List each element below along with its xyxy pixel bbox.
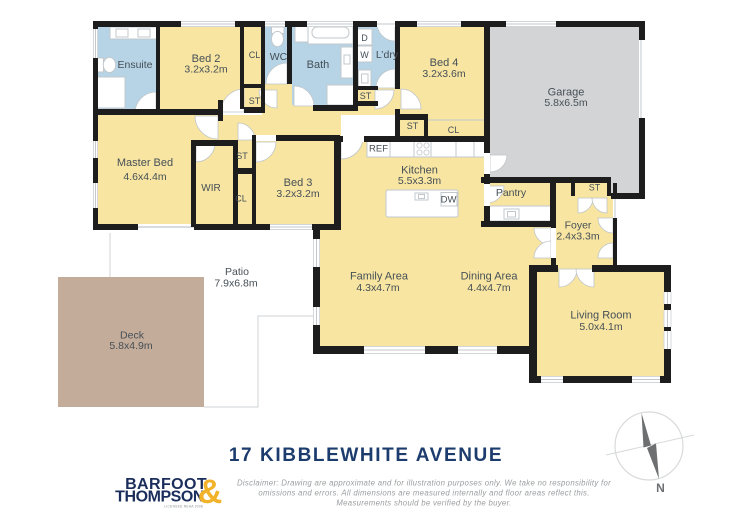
svg-text:DW: DW xyxy=(441,195,457,206)
svg-text:omissions and errors. All dime: omissions and errors. All dimensions are… xyxy=(258,489,589,498)
svg-text:Dining Area: Dining Area xyxy=(461,271,519,283)
svg-text:WC: WC xyxy=(270,51,288,63)
svg-text:REF: REF xyxy=(369,144,388,155)
svg-text:D: D xyxy=(361,33,368,43)
svg-text:ST: ST xyxy=(236,151,248,161)
svg-text:L’dry: L’dry xyxy=(376,49,399,61)
svg-text:Measurements should be verifie: Measurements should be verified by the b… xyxy=(336,499,511,508)
svg-text:W: W xyxy=(360,50,369,60)
svg-text:2.4x3.3m: 2.4x3.3m xyxy=(556,231,599,243)
svg-text:5.8x6.5m: 5.8x6.5m xyxy=(544,97,587,109)
svg-text:ST: ST xyxy=(249,96,261,106)
svg-text:7.9x6.8m: 7.9x6.8m xyxy=(214,278,257,290)
svg-text:3.2x3.6m: 3.2x3.6m xyxy=(422,68,465,80)
svg-text:5.8x4.9m: 5.8x4.9m xyxy=(109,340,152,352)
svg-text:CL: CL xyxy=(249,50,261,60)
svg-text:3.2x3.2m: 3.2x3.2m xyxy=(184,64,227,76)
svg-text:4.4x4.7m: 4.4x4.7m xyxy=(467,282,510,294)
svg-text:CL: CL xyxy=(448,125,460,135)
svg-text:ST: ST xyxy=(360,91,372,101)
svg-text:Living Room: Living Room xyxy=(570,310,631,322)
svg-text:N: N xyxy=(656,481,665,495)
svg-text:4.6x4.4m: 4.6x4.4m xyxy=(123,171,166,183)
svg-text:3.2x3.2m: 3.2x3.2m xyxy=(276,188,319,200)
svg-text:Bath: Bath xyxy=(307,59,330,71)
svg-text:4.3x4.7m: 4.3x4.7m xyxy=(356,282,399,294)
svg-text:Ensuite: Ensuite xyxy=(117,59,152,71)
svg-text:Master Bed: Master Bed xyxy=(117,157,173,169)
svg-text:WIR: WIR xyxy=(201,183,220,194)
svg-text:LICENSED REAA 2008: LICENSED REAA 2008 xyxy=(164,505,203,509)
svg-text:Family Area: Family Area xyxy=(350,271,409,283)
svg-text:ST: ST xyxy=(407,121,419,131)
svg-text:5.0x4.1m: 5.0x4.1m xyxy=(579,321,622,333)
svg-text:5.5x3.3m: 5.5x3.3m xyxy=(398,175,441,187)
svg-text:ST: ST xyxy=(589,183,601,193)
svg-text:Patio: Patio xyxy=(225,266,249,278)
svg-text:THOMPSON: THOMPSON xyxy=(115,489,204,506)
svg-text:Pantry: Pantry xyxy=(496,187,527,199)
svg-text:CL: CL xyxy=(235,194,247,204)
svg-text:17 KIBBLEWHITE AVENUE: 17 KIBBLEWHITE AVENUE xyxy=(229,445,503,466)
svg-text:Disclaimer: Drawing are approx: Disclaimer: Drawing are approximate and … xyxy=(237,479,611,488)
